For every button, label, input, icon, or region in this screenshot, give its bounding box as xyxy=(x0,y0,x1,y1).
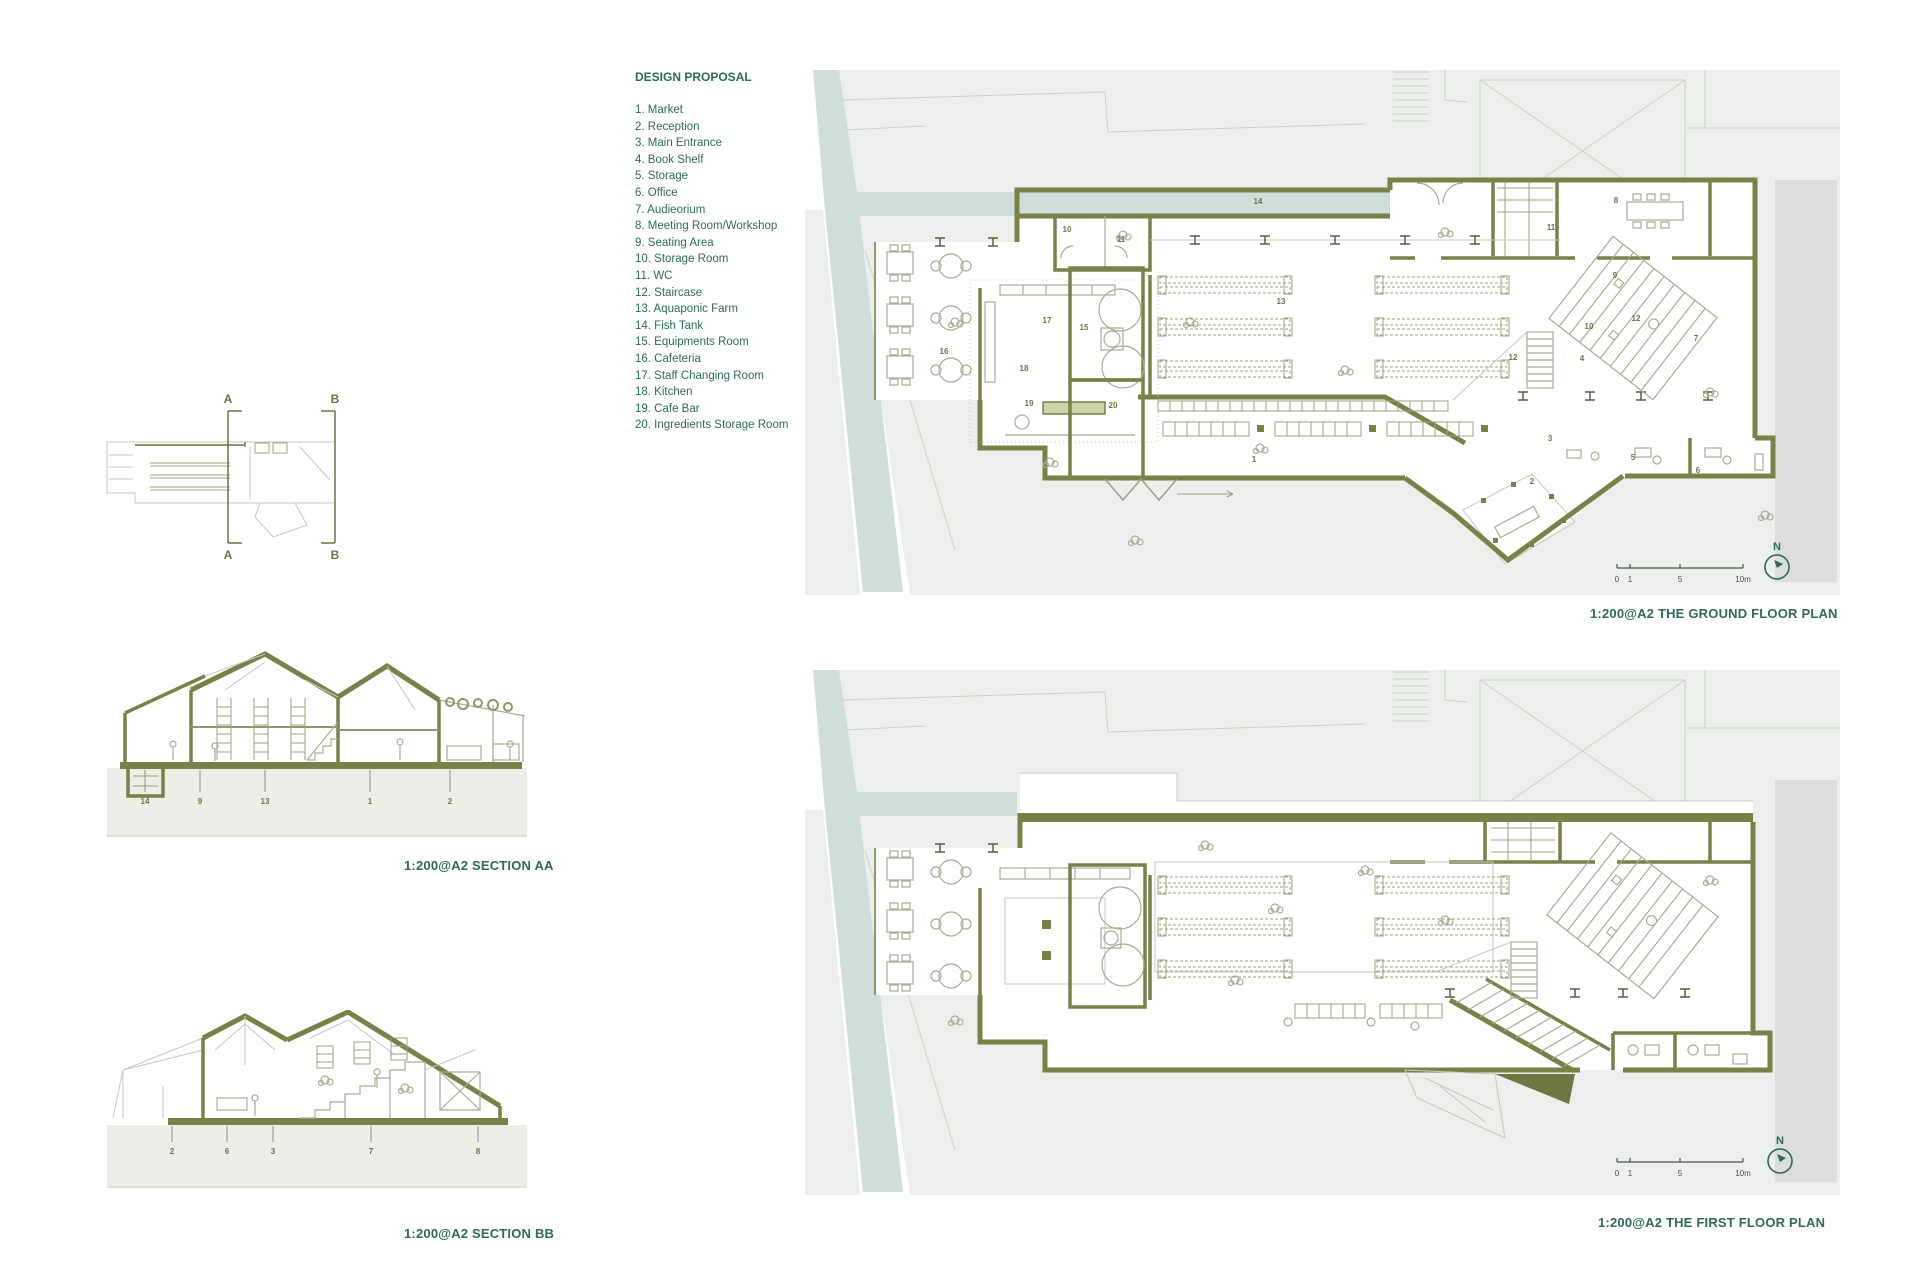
room-label: 18 xyxy=(1020,364,1029,373)
north-label: N xyxy=(1773,541,1781,553)
room-label: 10 xyxy=(1063,225,1072,234)
people-figures xyxy=(170,739,513,761)
section-label: 8 xyxy=(476,1147,481,1156)
section-label: 3 xyxy=(271,1147,276,1156)
room-label: 11 xyxy=(1547,223,1556,232)
room-label: 14 xyxy=(1254,197,1263,206)
auditorium-steps xyxy=(300,1062,425,1118)
key-plan-building xyxy=(107,442,335,537)
scale-tick: 10m xyxy=(1735,575,1751,584)
first-floor-plan: 0 1 5 10m N xyxy=(805,670,1840,1195)
room-label: 13 xyxy=(1277,297,1286,306)
scale-tick: 5 xyxy=(1678,575,1683,584)
section-marker-b-top: B xyxy=(331,392,340,406)
fish-tank-canal xyxy=(1017,192,1390,214)
section-aa: 14 9 13 1 2 xyxy=(95,650,555,875)
roof-edge xyxy=(1020,813,1753,822)
room-label: 11 xyxy=(1117,235,1126,244)
section-bb: 2 6 3 7 8 xyxy=(95,1010,555,1205)
section-cut-lines xyxy=(228,411,335,543)
scale-tick: 0 xyxy=(1615,575,1620,584)
section-aa-caption: 1:200@A2 SECTION AA xyxy=(404,858,554,873)
ground-floor-plan: 14 10 11 17 15 18 19 16 20 13 1 12 11 8 … xyxy=(805,70,1840,595)
scale-tick: 0 xyxy=(1615,1169,1620,1178)
room-label: 19 xyxy=(1025,399,1034,408)
key-plan: A A B B xyxy=(95,385,415,570)
section-label: 9 xyxy=(198,797,203,806)
aquaponic-towers xyxy=(217,698,305,760)
room-label: 17 xyxy=(1043,316,1052,325)
ground-floor-caption: 1:200@A2 THE GROUND FLOOR PLAN xyxy=(1590,606,1838,621)
section-marker-b-bottom: B xyxy=(331,548,340,562)
section-label: 1 xyxy=(368,797,373,806)
section-bb-caption: 1:200@A2 SECTION BB xyxy=(404,1226,554,1241)
room-label: 4 xyxy=(1580,354,1585,363)
room-label: 20 xyxy=(1109,401,1118,410)
section-label: 2 xyxy=(170,1147,175,1156)
room-label: 16 xyxy=(940,347,949,356)
room-label: 5 xyxy=(1631,453,1636,462)
room-label: 10 xyxy=(1585,322,1594,331)
section-label: 13 xyxy=(261,797,270,806)
room-label: 1 xyxy=(1252,455,1257,464)
section-label: 6 xyxy=(225,1147,230,1156)
section-marker-a-top: A xyxy=(224,392,233,406)
room-label: 6 xyxy=(1696,466,1701,475)
first-floor-caption: 1:200@A2 THE FIRST FLOOR PLAN xyxy=(1598,1215,1825,1230)
room-label: 3 xyxy=(1548,434,1553,443)
scale-tick: 10m xyxy=(1735,1169,1751,1178)
room-label: 15 xyxy=(1080,323,1089,332)
section-label: 2 xyxy=(448,797,453,806)
room-label: 7 xyxy=(1694,334,1699,343)
section-label: 7 xyxy=(369,1147,374,1156)
room-label: 12 xyxy=(1509,353,1518,362)
section-label: 14 xyxy=(141,797,150,806)
section-marker-a-bottom: A xyxy=(224,548,233,562)
section-bb-drawing xyxy=(113,1012,500,1118)
room-label: 12 xyxy=(1632,314,1641,323)
room-label: 2 xyxy=(1530,477,1535,486)
north-label: N xyxy=(1776,1135,1784,1147)
scale-tick: 1 xyxy=(1628,575,1633,584)
scale-tick: 1 xyxy=(1628,1169,1633,1178)
room-label: 8 xyxy=(1614,196,1619,205)
scale-tick: 5 xyxy=(1678,1169,1683,1178)
room-label: 9 xyxy=(1613,271,1618,280)
